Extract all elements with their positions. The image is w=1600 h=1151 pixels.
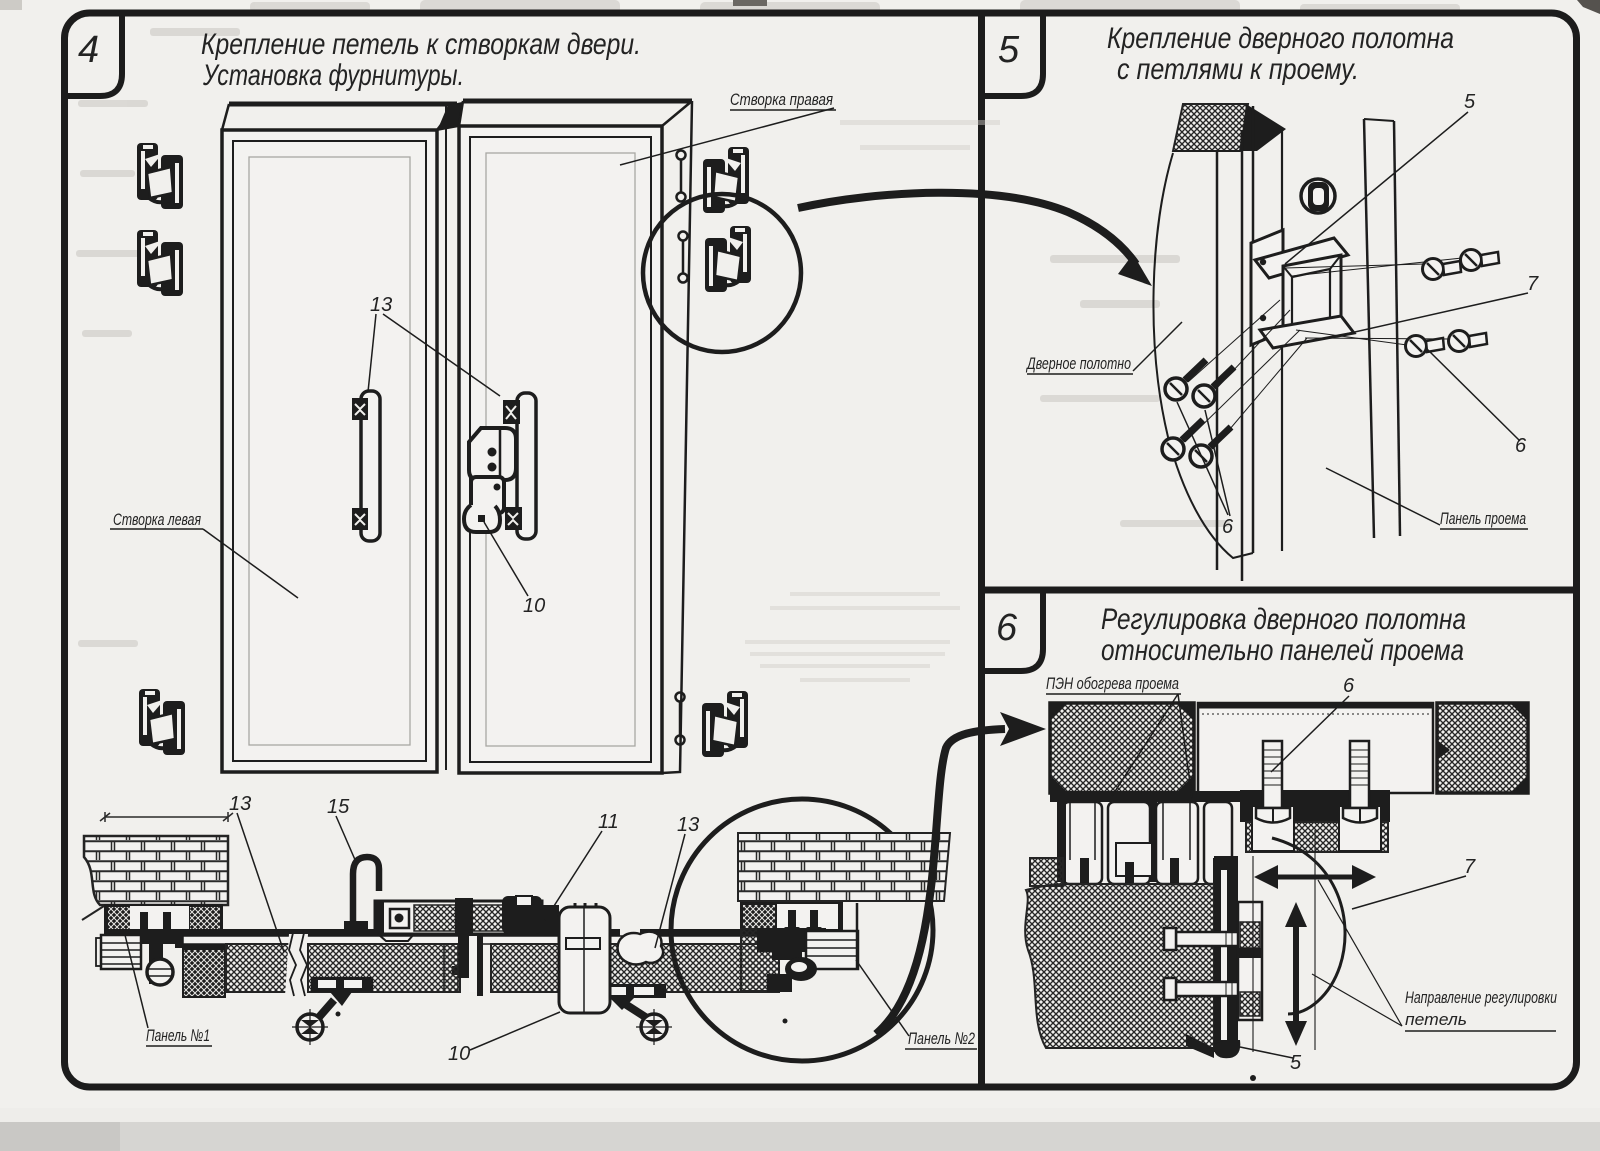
svg-text:Панель №2: Панель №2 [908,1029,975,1048]
svg-text:петель: петель [1405,1010,1467,1029]
svg-text:13: 13 [229,793,251,815]
svg-text:ПЭН обогрева проема: ПЭН обогрева проема [1046,674,1179,693]
svg-text:Панель проема: Панель проема [1440,509,1526,528]
svg-text:13: 13 [370,294,392,316]
svg-text:7: 7 [1527,273,1539,295]
svg-text:10: 10 [448,1043,470,1065]
svg-text:Крепление петель к створкам дв: Крепление петель к створкам двери. [201,28,641,61]
svg-text:5: 5 [998,29,1020,71]
svg-text:Дверное полотно: Дверное полотно [1026,354,1131,373]
svg-text:7: 7 [1464,856,1476,878]
svg-text:Панель №1: Панель №1 [146,1026,210,1045]
svg-text:13: 13 [677,814,699,836]
svg-text:5: 5 [1290,1052,1302,1074]
svg-text:с петлями к проему.: с петлями к проему. [1117,53,1359,86]
svg-text:Створка левая: Створка левая [113,510,201,529]
svg-text:6: 6 [1343,675,1355,697]
svg-text:Крепление дверного полотна: Крепление дверного полотна [1107,22,1454,55]
svg-text:11: 11 [598,811,619,833]
svg-text:5: 5 [1464,91,1476,113]
svg-text:15: 15 [327,796,350,818]
svg-text:10: 10 [523,595,545,617]
svg-text:6: 6 [1222,516,1234,538]
svg-text:Направление регулировки: Направление регулировки [1405,988,1557,1007]
svg-text:Регулировка дверного полотна: Регулировка дверного полотна [1101,603,1466,636]
svg-text:относительно панелей проема: относительно панелей проема [1101,634,1464,667]
svg-text:Установка фурнитуры.: Установка фурнитуры. [202,59,464,92]
svg-text:4: 4 [78,29,99,71]
svg-text:Створка правая: Створка правая [730,90,833,109]
svg-text:6: 6 [996,607,1018,649]
